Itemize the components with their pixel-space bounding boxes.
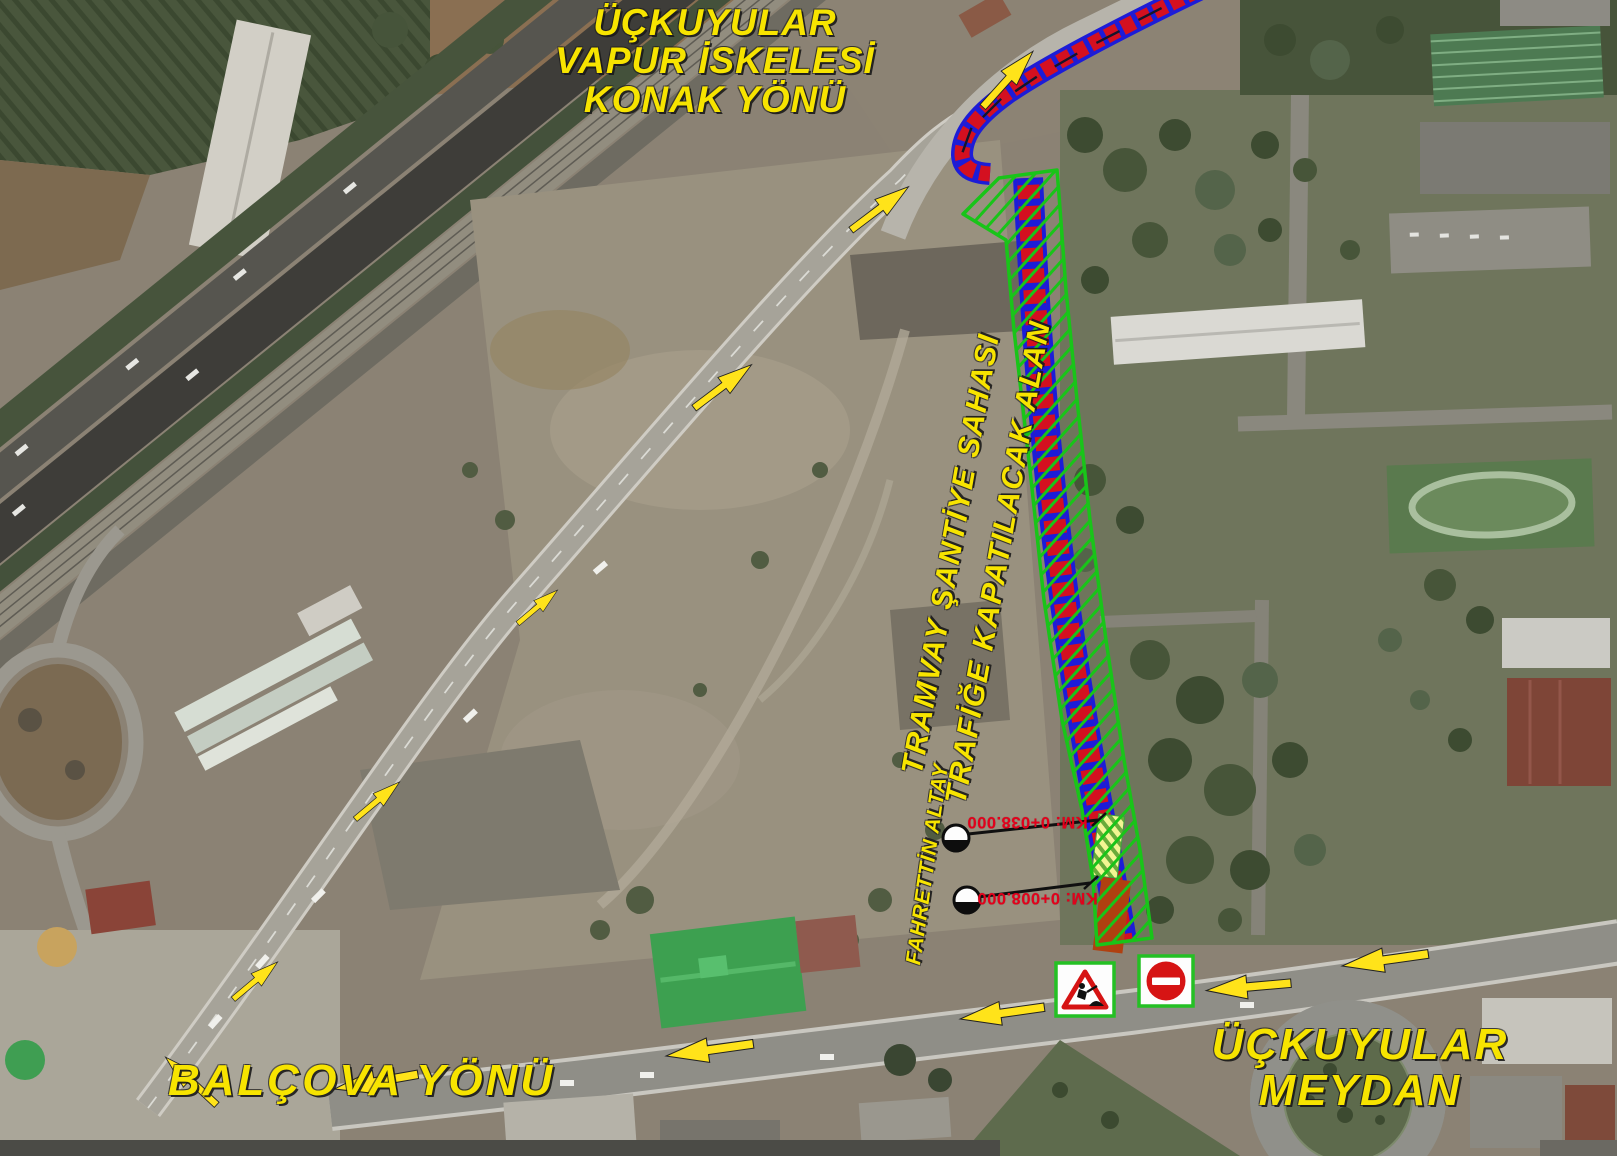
annotated-satellite-map: ÜÇKUYULAR VAPUR İSKELESİ KONAK YÖNÜ TRAM… (0, 0, 1617, 1156)
ferry-direction-line2: VAPUR İSKELESİ (490, 42, 940, 80)
direction-arrow-road-5 (228, 956, 283, 1006)
direction-arrow-west-4 (1205, 971, 1292, 1002)
direction-arrow-road-4 (350, 776, 405, 826)
chainage-end-label: KM: 0+008.000 (977, 888, 1098, 907)
square-name-line2: MEYDAN (1150, 1068, 1570, 1114)
balcova-direction-label: BALÇOVA YÖNÜ (168, 1056, 555, 1106)
direction-arrow-road-1 (845, 179, 915, 238)
direction-arrow-road-2 (688, 357, 758, 416)
roadworks-sign-icon (1056, 963, 1114, 1016)
ferry-direction-label: ÜÇKUYULAR VAPUR İSKELESİ KONAK YÖNÜ (490, 4, 940, 119)
direction-arrow-west-5 (1340, 942, 1430, 978)
square-name-label: ÜÇKUYULAR MEYDAN (1150, 1022, 1570, 1114)
no-entry-sign-icon (1139, 956, 1193, 1006)
direction-arrow-road-3 (513, 585, 562, 630)
ferry-direction-line3: KONAK YÖNÜ (490, 81, 940, 119)
square-name-line1: ÜÇKUYULAR (1150, 1022, 1570, 1068)
chainage-start-marker (943, 825, 969, 852)
ferry-direction-line1: ÜÇKUYULAR (490, 4, 940, 42)
direction-arrow-west-3 (959, 995, 1046, 1030)
direction-arrow-west-2 (664, 1032, 755, 1069)
map-annotations (0, 0, 1617, 1156)
traffic-direction-arrows (159, 44, 1430, 1112)
chainage-start-label: KM: 0+038.000 (967, 812, 1088, 831)
